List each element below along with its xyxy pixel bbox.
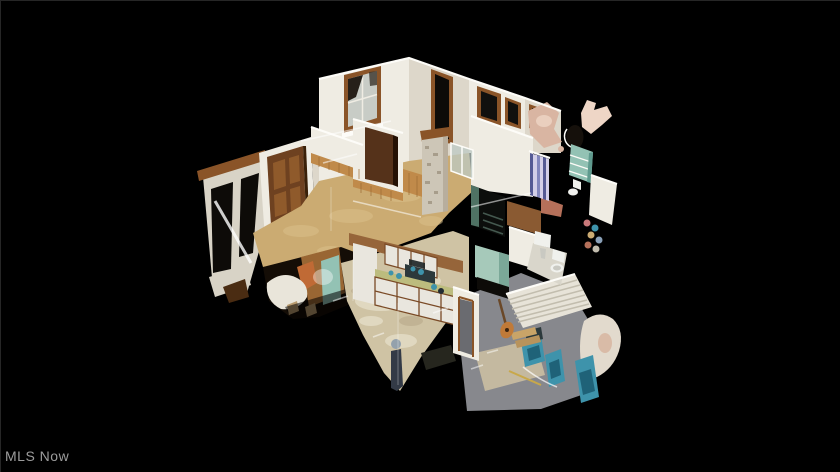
watermark-text: MLS Now [5,448,69,464]
dollhouse-scene [1,1,840,472]
striped-shower-curtain [529,151,550,201]
interior-dark-door [365,127,393,185]
stone-chimney [420,127,451,215]
tall-cabinet [353,243,377,305]
toilet-bowl-upper [568,189,578,196]
doorframe-wall [453,287,479,361]
listing-photo-3d-dollhouse[interactable]: MLS Now [0,0,840,472]
